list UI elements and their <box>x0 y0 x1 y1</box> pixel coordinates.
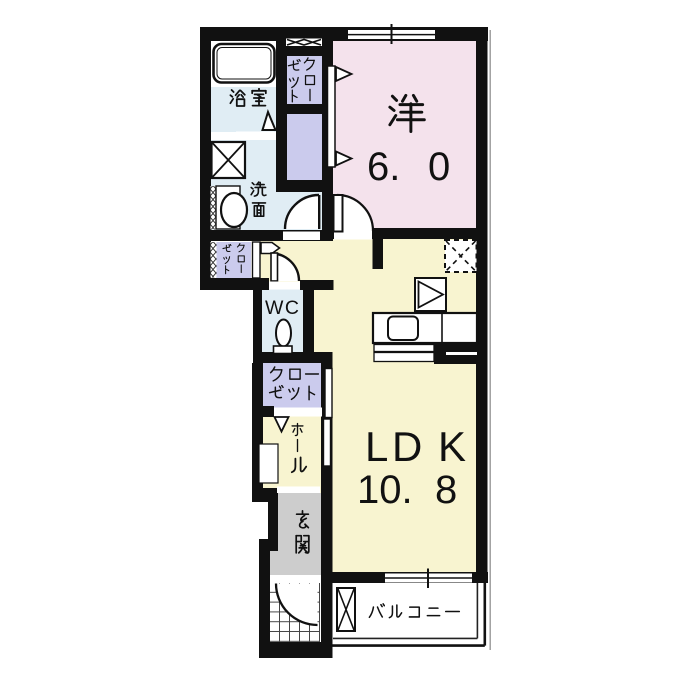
svg-text:6.: 6. <box>367 145 400 189</box>
svg-text:L: L <box>365 423 388 470</box>
svg-text:WC: WC <box>265 297 301 319</box>
svg-text:8: 8 <box>435 468 457 512</box>
svg-text:K: K <box>438 423 466 470</box>
svg-text:0: 0 <box>428 145 450 189</box>
svg-text:10.: 10. <box>357 468 413 512</box>
svg-text:D: D <box>392 423 422 470</box>
